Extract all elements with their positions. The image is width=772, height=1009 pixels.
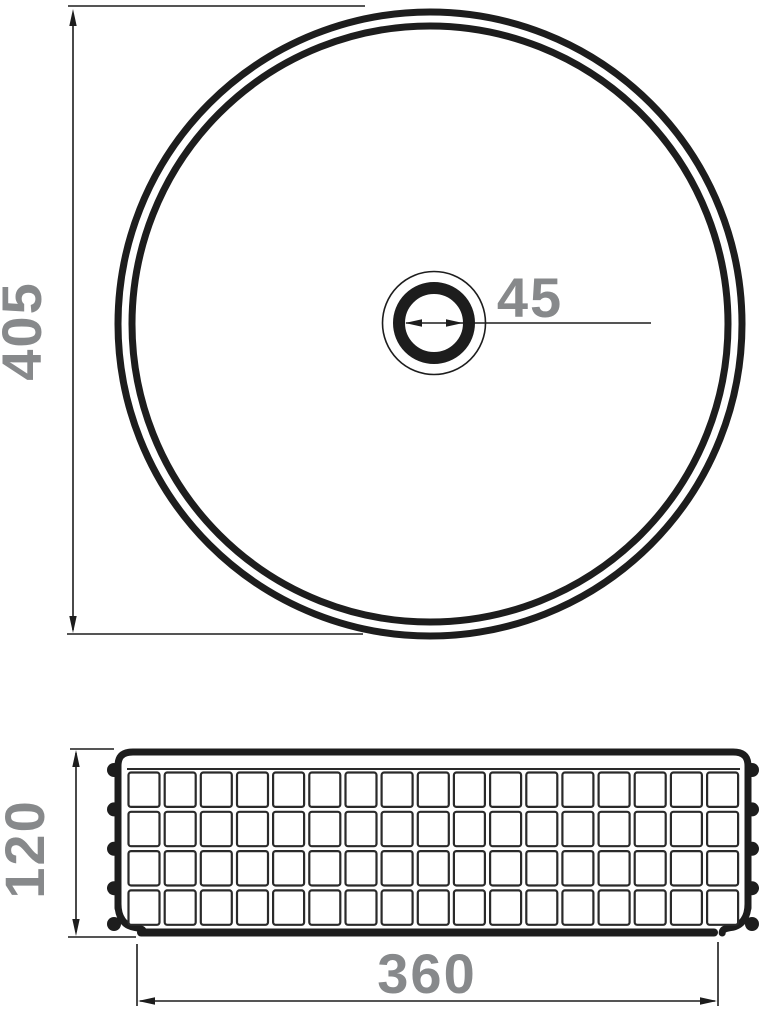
height-arrowhead-down	[72, 919, 79, 936]
grid-cell	[237, 851, 268, 885]
grid-cell	[599, 773, 630, 807]
base-arrowhead-left	[138, 997, 155, 1004]
grid-cell	[165, 773, 196, 807]
grid-cell	[273, 773, 304, 807]
grid-cell	[273, 812, 304, 846]
grid-cell	[201, 812, 232, 846]
grid-cell	[635, 812, 666, 846]
grid-cell	[490, 773, 521, 807]
drain-arrowhead-left	[405, 319, 422, 327]
base-dimension-label: 360	[377, 942, 476, 1005]
grid-cell	[562, 812, 593, 846]
grid-cell	[454, 812, 485, 846]
grid-cell	[201, 851, 232, 885]
grid-cell	[346, 851, 377, 885]
grid-cell	[707, 773, 738, 807]
diameter-dimension-label: 405	[0, 281, 53, 380]
grid-cell	[165, 851, 196, 885]
grid-cell	[671, 812, 702, 846]
grid-cell	[562, 773, 593, 807]
grid-cell	[309, 851, 340, 885]
grid-cell	[671, 851, 702, 885]
grid-cell	[273, 890, 304, 924]
drawing-svg: 405 45 120 360	[0, 0, 772, 1009]
grid-cell	[707, 812, 738, 846]
grid-cell	[454, 851, 485, 885]
grid-cell	[346, 812, 377, 846]
grid-cell	[490, 851, 521, 885]
grid-cell	[418, 851, 449, 885]
grid-cell	[526, 812, 557, 846]
grid-cell	[309, 773, 340, 807]
grid-cell	[382, 851, 413, 885]
grid-cell	[599, 890, 630, 924]
grid-cell	[165, 890, 196, 924]
grid-cell	[382, 773, 413, 807]
grid-cell	[490, 812, 521, 846]
grid-cell	[454, 773, 485, 807]
grid-cell	[562, 890, 593, 924]
grid-cell	[707, 851, 738, 885]
grid-cell	[237, 773, 268, 807]
grid-cell	[346, 890, 377, 924]
grid-cell	[635, 851, 666, 885]
grid-cell	[201, 773, 232, 807]
grid-cell	[382, 890, 413, 924]
drain-dimension-label: 45	[497, 266, 563, 329]
grid-cell	[237, 890, 268, 924]
grid-cell	[309, 812, 340, 846]
grid-cell	[635, 890, 666, 924]
dimension-drawing: 405 45 120 360	[0, 0, 772, 1009]
grid-cell	[526, 851, 557, 885]
grid-cell	[599, 812, 630, 846]
diameter-arrowhead-up	[69, 9, 76, 26]
grid-cell	[129, 812, 160, 846]
height-dimension-label: 120	[0, 799, 56, 898]
tile-grid	[129, 773, 739, 925]
drain-arrowhead-right	[446, 319, 463, 327]
grid-cell	[562, 851, 593, 885]
grid-cell	[707, 890, 738, 924]
basin-outer-rim-circle	[118, 12, 742, 636]
grid-cell	[454, 890, 485, 924]
grid-cell	[237, 812, 268, 846]
grid-cell	[635, 773, 666, 807]
grid-cell	[309, 890, 340, 924]
grid-cell	[382, 812, 413, 846]
side-view: 120 360	[0, 749, 759, 1006]
base-arrowhead-right	[700, 997, 717, 1004]
grid-cell	[165, 812, 196, 846]
height-arrowhead-up	[72, 750, 79, 767]
diameter-arrowhead-down	[69, 616, 76, 633]
basin-inner-rim-circle	[132, 26, 728, 622]
grid-cell	[129, 890, 160, 924]
grid-cell	[418, 812, 449, 846]
grid-cell	[201, 890, 232, 924]
grid-cell	[599, 851, 630, 885]
top-view: 405 45	[0, 6, 742, 636]
grid-cell	[346, 773, 377, 807]
grid-cell	[671, 773, 702, 807]
grid-cell	[418, 773, 449, 807]
grid-cell	[129, 851, 160, 885]
grid-cell	[526, 890, 557, 924]
grid-cell	[129, 773, 160, 807]
grid-cell	[273, 851, 304, 885]
grid-cell	[526, 773, 557, 807]
grid-cell	[490, 890, 521, 924]
grid-cell	[671, 890, 702, 924]
grid-cell	[418, 890, 449, 924]
